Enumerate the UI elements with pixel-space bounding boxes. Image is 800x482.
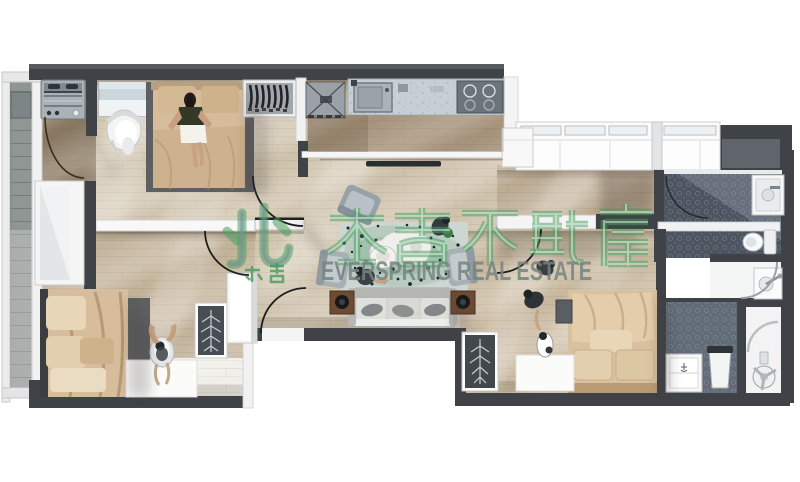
svg-text:EVERSPRING REAL ESTATE: EVERSPRING REAL ESTATE (321, 256, 592, 286)
